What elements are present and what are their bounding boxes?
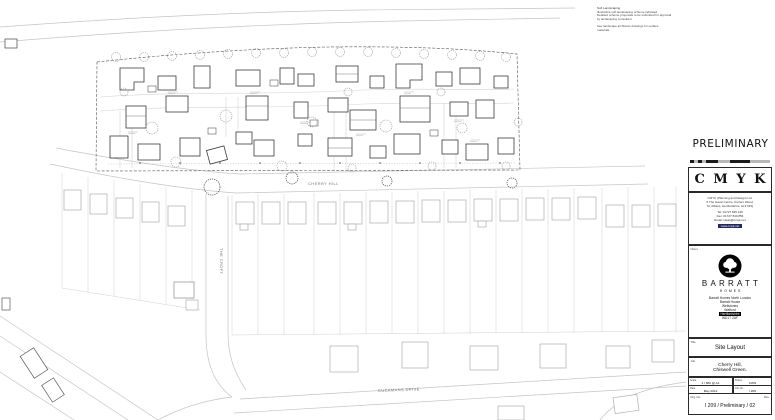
- street-label-cuckmans-drive: CUCKMANS DRIVE: [378, 387, 420, 393]
- barratt-tree-icon: [718, 254, 742, 278]
- client-address: Barratt Homes North London Barratt House…: [689, 296, 771, 321]
- existing-houses: [2, 39, 676, 420]
- estate-roads: [100, 89, 516, 170]
- drawing-info-fields: Scale 1 / 500 @ A1 Drawn CWN Date May 20…: [688, 377, 772, 393]
- site-plan: CHERRY HILL THE CROFT CUCKMANS DRIVE: [0, 0, 686, 420]
- materials-note: See landscape architects drawings for su…: [597, 25, 689, 32]
- drg-no-label: Drg. No.: [691, 395, 701, 399]
- proposed-houses: [110, 64, 514, 164]
- status-stamp: PRELIMINARY: [686, 138, 775, 150]
- site-layout-drawing: CHERRY HILL THE CROFT CUCKMANS DRIVE Sof…: [0, 0, 775, 420]
- consultant-box: CMYK (Planning and Design) Ltd. 6 The Ga…: [688, 192, 772, 245]
- drawing-number: I 209 / Preliminary / 02: [689, 403, 771, 409]
- cmyk-letters: C M Y K: [695, 172, 768, 187]
- client-box: Client BARRATT HOMES Barratt Homes North…: [688, 245, 772, 338]
- barratt-wordmark: BARRATT: [692, 279, 771, 288]
- homes-wordmark: HOMES: [691, 289, 771, 293]
- client-address-line: WD17 2AF: [689, 316, 771, 320]
- drawing-number-box: Drg. No. Rev. I 209 / Preliminary / 02: [688, 393, 772, 415]
- rev-label: Rev.: [764, 395, 770, 399]
- title-block-panel: PRELIMINARY C M Y K CMYK (Planning and D…: [686, 0, 775, 420]
- street-label-the-croft: THE CROFT: [219, 248, 224, 275]
- scale-bar-icon: [690, 160, 770, 163]
- note-line: materials.: [597, 29, 689, 33]
- client-field-label: Client: [691, 247, 698, 251]
- street-label-cherry-hill: CHERRY HILL: [308, 181, 339, 186]
- cmyk-logo: C M Y K: [688, 167, 772, 192]
- job-name: Cherry Hill, Chiswell Green.: [689, 363, 771, 374]
- drawing-title: Site Layout: [689, 345, 771, 351]
- consultant-website: www.cmyk.net: [718, 224, 741, 228]
- consultant-email: Email: ideas@cmyk.net: [689, 219, 771, 223]
- title-field-label: Title: [691, 340, 696, 344]
- job-field-label: Job: [691, 359, 696, 363]
- landscaping-note: Soft Landscaping Illustrative soft lands…: [597, 7, 689, 22]
- job-box: Job Cherry Hill, Chiswell Green.: [688, 357, 772, 377]
- note-line: by landscaping consultant.: [597, 18, 689, 22]
- title-box: Title Site Layout: [688, 338, 772, 357]
